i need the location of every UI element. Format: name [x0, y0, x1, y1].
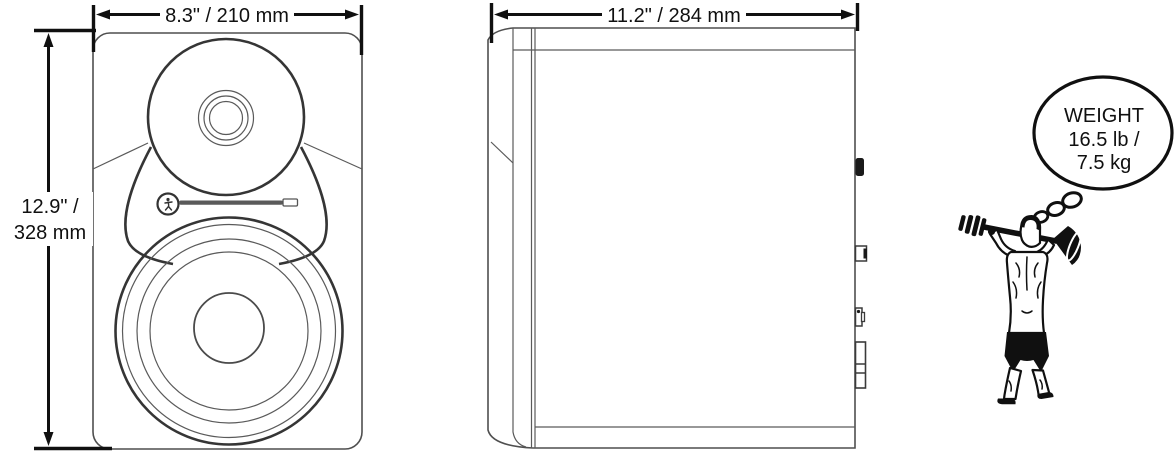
depth-dimension-label: 11.2" / 284 mm — [607, 5, 740, 27]
rear-connector-block — [856, 342, 866, 388]
height-dimension-label-line1: 12.9" / — [21, 196, 79, 218]
strongman-left-foot — [997, 399, 1015, 405]
woofer-cone-ring-outer — [137, 239, 321, 423]
diagram-canvas: 8.3" / 210 mm 12.9" / 328 mm — [0, 0, 1176, 457]
woofer — [116, 218, 343, 445]
rear-jack-screw — [857, 310, 860, 313]
height-dimension-label-line2: 328 mm — [14, 222, 86, 244]
waveguide-circle — [148, 39, 304, 195]
baffle-crease-right — [304, 143, 362, 169]
front-cabinet-outline — [93, 33, 362, 449]
width-dimension: 8.3" / 210 mm — [94, 3, 362, 55]
strongman-left-leg — [1004, 368, 1021, 399]
weight-title: WEIGHT — [1064, 105, 1144, 127]
speaker-front-view — [93, 33, 362, 449]
woofer-dust-cap — [194, 293, 264, 363]
rear-switch-toggle — [864, 249, 868, 259]
tweeter-ring-mid — [204, 96, 248, 140]
strongman-trunks — [1005, 332, 1050, 372]
arrowhead-right-icon — [345, 10, 359, 20]
side-baffle-line — [513, 28, 526, 447]
strongman-left-hand — [988, 228, 995, 235]
rear-jack-tip — [862, 313, 865, 322]
barbell-plates-left-icon — [958, 215, 987, 237]
side-cabinet-outline — [488, 28, 855, 448]
tweeter-ring-outer — [199, 91, 254, 146]
speaker-side-view — [488, 28, 867, 448]
woofer-cone-ring-inner — [150, 252, 308, 410]
arrowhead-up-icon — [44, 33, 54, 47]
rear-knob — [856, 158, 865, 176]
rear-panel-features — [856, 158, 868, 388]
front-led-slot — [179, 201, 283, 205]
height-dimension: 12.9" / 328 mm — [5, 31, 112, 449]
weight-kilograms: 7.5 kg — [1077, 152, 1131, 174]
dimension-diagram: 8.3" / 210 mm 12.9" / 328 mm — [0, 0, 1176, 457]
arrowhead-left-icon — [96, 10, 110, 20]
arrowhead-right-icon — [841, 10, 855, 20]
strongman-illustration — [958, 215, 1084, 405]
depth-dimension: 11.2" / 284 mm — [492, 3, 858, 43]
front-slot-end-cap — [283, 199, 298, 206]
logo-and-slot — [158, 194, 298, 215]
weight-thought-bubble: WEIGHT 16.5 lb / 7.5 kg — [1033, 77, 1172, 224]
side-waveguide-crease — [491, 142, 513, 163]
arrowhead-left-icon — [494, 10, 508, 20]
barbell-bell-right-icon — [1053, 226, 1084, 265]
tweeter-ring-inner — [210, 102, 243, 135]
tweeter-waveguide — [93, 39, 362, 264]
weight-pounds: 16.5 lb / — [1068, 129, 1140, 151]
baffle-crease-left — [93, 143, 148, 169]
width-dimension-label: 8.3" / 210 mm — [165, 5, 289, 27]
arrowhead-down-icon — [44, 432, 54, 446]
